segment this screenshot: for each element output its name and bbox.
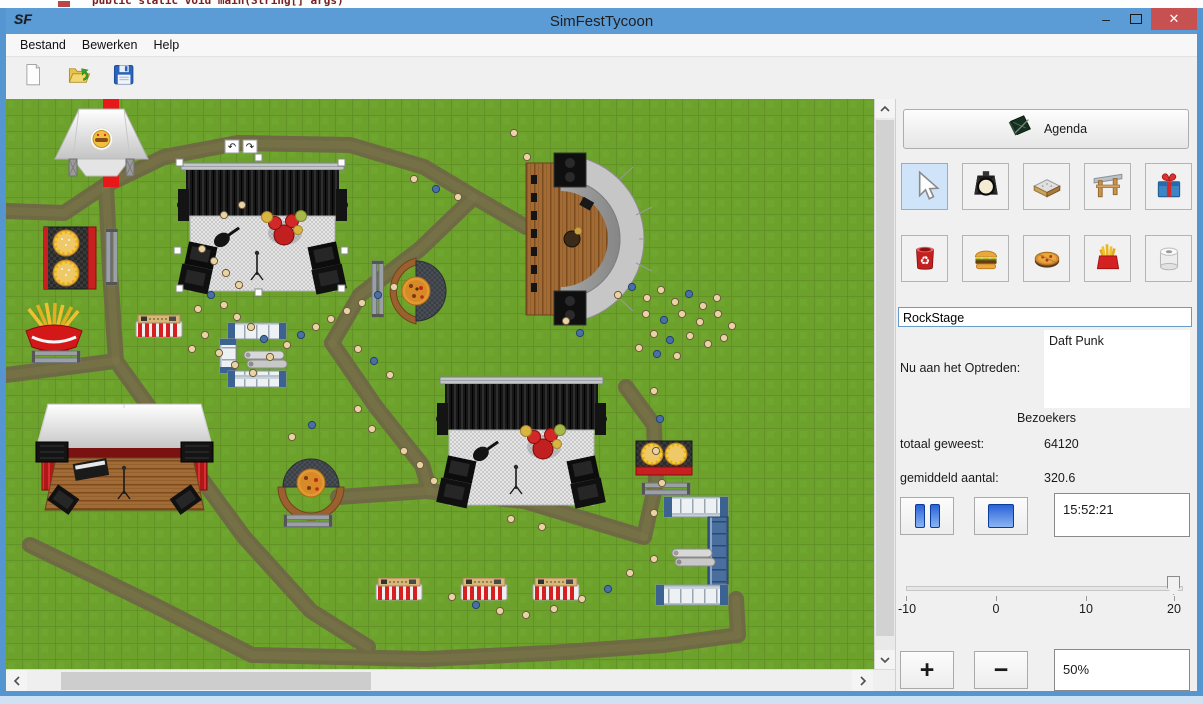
visitor bbox=[550, 605, 557, 612]
tool-stage-button[interactable] bbox=[1023, 163, 1070, 210]
gate-icon bbox=[1091, 168, 1125, 205]
visitor bbox=[390, 283, 397, 290]
visitor bbox=[562, 317, 569, 324]
visitor bbox=[368, 425, 375, 432]
visitor bbox=[343, 307, 350, 314]
visitor bbox=[635, 344, 642, 351]
visitor bbox=[410, 175, 417, 182]
tool-burger-button[interactable] bbox=[962, 235, 1009, 282]
visitor bbox=[472, 601, 479, 608]
background-code-editor: public static void main(String[] args) bbox=[0, 0, 1203, 8]
tool-select-button[interactable] bbox=[901, 163, 948, 210]
horizontal-scrollbar-thumb[interactable] bbox=[61, 672, 371, 690]
tool-gift-button[interactable] bbox=[1145, 163, 1192, 210]
visitor bbox=[643, 294, 650, 301]
slider-tick-10: 10 bbox=[1071, 602, 1101, 616]
visitor bbox=[188, 345, 195, 352]
visitor bbox=[628, 283, 635, 290]
total-visitors-value: 64120 bbox=[1044, 437, 1079, 451]
slider-tick-0: 0 bbox=[981, 602, 1011, 616]
metal-tubes[interactable] bbox=[672, 549, 715, 566]
close-button[interactable]: ✕ bbox=[1151, 8, 1197, 30]
scroll-down-button[interactable] bbox=[875, 650, 895, 669]
chevron-right-icon bbox=[859, 676, 867, 686]
visitor bbox=[238, 201, 245, 208]
selection-handle[interactable] bbox=[176, 285, 183, 292]
rock-stage[interactable]: ↶↷ bbox=[174, 140, 348, 296]
market-stall[interactable] bbox=[533, 578, 579, 600]
chevron-up-icon bbox=[880, 105, 890, 113]
visitor bbox=[496, 607, 503, 614]
burger-stand[interactable] bbox=[44, 227, 96, 289]
visitor bbox=[308, 421, 315, 428]
visitor bbox=[215, 349, 222, 356]
visitor bbox=[699, 302, 706, 309]
save-icon bbox=[111, 62, 138, 94]
visitor bbox=[400, 447, 407, 454]
visitor bbox=[658, 479, 665, 486]
visitor bbox=[430, 477, 437, 484]
visitor bbox=[626, 569, 633, 576]
visitor bbox=[538, 523, 545, 530]
slider-tick-minus10: -10 bbox=[892, 602, 922, 616]
selection-handle[interactable] bbox=[338, 159, 345, 166]
horizontal-scrollbar[interactable] bbox=[6, 669, 895, 691]
svg-text:↷: ↷ bbox=[246, 142, 255, 153]
market-stall[interactable] bbox=[376, 578, 422, 600]
desktop-background bbox=[0, 696, 1203, 704]
visitor bbox=[713, 294, 720, 301]
visitor bbox=[207, 291, 214, 298]
visitor bbox=[220, 211, 227, 218]
background-code-text: public static void main(String[] args) bbox=[92, 0, 344, 7]
visitor bbox=[650, 509, 657, 516]
visitor bbox=[653, 350, 660, 357]
zoom-level-display: 50% bbox=[1054, 649, 1190, 691]
toolbar-buttons bbox=[6, 57, 1197, 99]
visitor bbox=[510, 129, 517, 136]
spotlight-icon bbox=[969, 168, 1003, 205]
visitor bbox=[657, 286, 664, 293]
total-visitors-label: totaal geweest: bbox=[900, 437, 984, 451]
visitor bbox=[374, 291, 381, 298]
barn-stage[interactable] bbox=[36, 404, 213, 515]
save-file-button[interactable] bbox=[108, 62, 140, 94]
agenda-label: Agenda bbox=[1044, 122, 1087, 136]
selection-handle[interactable] bbox=[255, 154, 262, 161]
visitor bbox=[507, 515, 514, 522]
visitor bbox=[312, 323, 319, 330]
menubar: Bestand Bewerken Help bbox=[6, 34, 1197, 57]
stop-icon bbox=[988, 504, 1014, 528]
vertical-scrollbar-thumb[interactable] bbox=[876, 120, 894, 636]
market-stall[interactable] bbox=[461, 578, 507, 600]
visitor bbox=[656, 415, 663, 422]
cursor-icon bbox=[908, 168, 942, 205]
new-document-icon bbox=[21, 62, 48, 94]
visitor bbox=[249, 369, 256, 376]
zoom-out-button[interactable]: − bbox=[974, 651, 1028, 689]
tool-pizza-button[interactable] bbox=[1023, 235, 1070, 282]
maximize-button[interactable] bbox=[1121, 8, 1151, 30]
visitor bbox=[714, 310, 721, 317]
visitor bbox=[260, 335, 267, 342]
agenda-icon bbox=[1005, 113, 1035, 146]
tool-toilet-button[interactable] bbox=[1145, 235, 1192, 282]
market-stall[interactable] bbox=[136, 315, 182, 337]
visitor bbox=[666, 336, 673, 343]
visitor bbox=[660, 316, 667, 323]
visitor bbox=[231, 361, 238, 368]
visitor bbox=[652, 447, 659, 454]
stage-icon bbox=[1030, 168, 1064, 205]
fries-icon bbox=[1091, 240, 1125, 277]
metal-tubes[interactable] bbox=[244, 351, 287, 368]
visitor bbox=[220, 301, 227, 308]
visitor bbox=[522, 611, 529, 618]
tool-trash-button[interactable]: ♻ bbox=[901, 235, 948, 282]
speed-slider-track[interactable] bbox=[906, 586, 1183, 591]
maximize-icon bbox=[1130, 14, 1142, 24]
clock-display: 15:52:21 bbox=[1054, 493, 1190, 537]
visitor bbox=[247, 323, 254, 330]
scroll-left-button[interactable] bbox=[6, 670, 27, 691]
rock-stage[interactable] bbox=[436, 377, 607, 509]
visitor bbox=[358, 299, 365, 306]
svg-text:↶: ↶ bbox=[228, 142, 236, 153]
tool-gate-button[interactable] bbox=[1084, 163, 1131, 210]
svg-text:♻: ♻ bbox=[919, 254, 929, 267]
open-folder-icon bbox=[66, 62, 93, 94]
visitor bbox=[578, 595, 585, 602]
visitor bbox=[642, 310, 649, 317]
pause-icon bbox=[915, 504, 925, 528]
visitor bbox=[728, 322, 735, 329]
visitor bbox=[198, 245, 205, 252]
pause-button[interactable] bbox=[900, 497, 954, 535]
average-visitors-label: gemiddeld aantal: bbox=[900, 471, 999, 485]
trash-icon: ♻ bbox=[908, 240, 942, 277]
visitor bbox=[327, 315, 334, 322]
visitor bbox=[650, 555, 657, 562]
menu-item-help[interactable]: Help bbox=[145, 36, 187, 54]
visitor bbox=[288, 433, 295, 440]
pizza-icon bbox=[1030, 240, 1064, 277]
visitor bbox=[201, 331, 208, 338]
selection-handle[interactable] bbox=[338, 285, 345, 292]
average-visitors-value: 320.6 bbox=[1044, 471, 1075, 485]
scroll-right-button[interactable] bbox=[852, 670, 873, 691]
visitor bbox=[614, 291, 621, 298]
visitor bbox=[233, 313, 240, 320]
app-icon: SF bbox=[14, 11, 32, 27]
chevron-left-icon bbox=[13, 676, 21, 686]
visitor bbox=[704, 340, 711, 347]
toilet-roll-icon bbox=[1152, 240, 1186, 277]
visitor bbox=[671, 298, 678, 305]
visitor bbox=[650, 330, 657, 337]
agenda-button[interactable]: Agenda bbox=[903, 109, 1189, 149]
visitor bbox=[283, 341, 290, 348]
selection-handle[interactable] bbox=[255, 289, 262, 296]
visitor bbox=[673, 352, 680, 359]
stage-name-input[interactable] bbox=[898, 307, 1192, 327]
visitor bbox=[354, 345, 361, 352]
titlebar[interactable]: SF SimFestTycoon – ✕ bbox=[6, 8, 1197, 34]
new-file-button[interactable] bbox=[18, 62, 50, 94]
tool-spotlight-button[interactable] bbox=[962, 163, 1009, 210]
speed-slider-thumb[interactable] bbox=[1167, 576, 1180, 595]
window-title: SimFestTycoon bbox=[6, 13, 1197, 30]
visitor bbox=[432, 185, 439, 192]
menu-item-bestand[interactable]: Bestand bbox=[12, 36, 74, 54]
tool-fries-button[interactable] bbox=[1084, 235, 1131, 282]
visitor bbox=[650, 387, 657, 394]
now-playing-value: Daft Punk bbox=[1049, 334, 1104, 348]
now-playing-label: Nu aan het Optreden: bbox=[900, 361, 1020, 375]
visitor bbox=[266, 353, 273, 360]
app-window: SF SimFestTycoon – ✕ Bestand Bewerken He… bbox=[0, 8, 1203, 696]
visitor bbox=[678, 310, 685, 317]
visitor bbox=[523, 153, 530, 160]
festival-map[interactable]: ↶↷ bbox=[6, 99, 874, 669]
visitor bbox=[194, 305, 201, 312]
visitors-header: Bezoekers bbox=[896, 411, 1197, 425]
visitor bbox=[354, 405, 361, 412]
open-file-button[interactable] bbox=[63, 62, 95, 94]
visitor bbox=[686, 332, 693, 339]
visitor bbox=[386, 371, 393, 378]
visitor bbox=[454, 193, 461, 200]
visitor bbox=[576, 329, 583, 336]
selection-handle[interactable] bbox=[341, 247, 348, 254]
visitor bbox=[297, 331, 304, 338]
slider-tick-20: 20 bbox=[1159, 602, 1189, 616]
visitor bbox=[448, 593, 455, 600]
gift-icon bbox=[1152, 168, 1186, 205]
visitor bbox=[370, 357, 377, 364]
background-editor-icon bbox=[58, 1, 70, 7]
burger-stand[interactable] bbox=[636, 441, 692, 475]
visitor bbox=[604, 585, 611, 592]
visitor bbox=[720, 334, 727, 341]
scroll-up-button[interactable] bbox=[875, 99, 895, 118]
visitor bbox=[696, 318, 703, 325]
selection-handle[interactable] bbox=[176, 159, 183, 166]
menu-item-bewerken[interactable]: Bewerken bbox=[74, 36, 146, 54]
now-playing-box: Daft Punk bbox=[1044, 330, 1190, 408]
minimize-button[interactable]: – bbox=[1091, 8, 1121, 30]
visitor bbox=[235, 281, 242, 288]
zoom-in-button[interactable]: + bbox=[900, 651, 954, 689]
visitor bbox=[685, 290, 692, 297]
chevron-down-icon bbox=[880, 656, 890, 664]
visitor bbox=[210, 257, 217, 264]
side-panel: Agenda ♻ Daft Punk Nu aan het Optreden: … bbox=[895, 99, 1197, 691]
visitor bbox=[416, 461, 423, 468]
tool-row-1 bbox=[901, 163, 1192, 210]
burger-icon bbox=[969, 240, 1003, 277]
vertical-scrollbar[interactable] bbox=[874, 99, 895, 669]
selection-handle[interactable] bbox=[174, 247, 181, 254]
visitor bbox=[222, 269, 229, 276]
tool-row-2: ♻ bbox=[901, 235, 1192, 282]
stop-button[interactable] bbox=[974, 497, 1028, 535]
